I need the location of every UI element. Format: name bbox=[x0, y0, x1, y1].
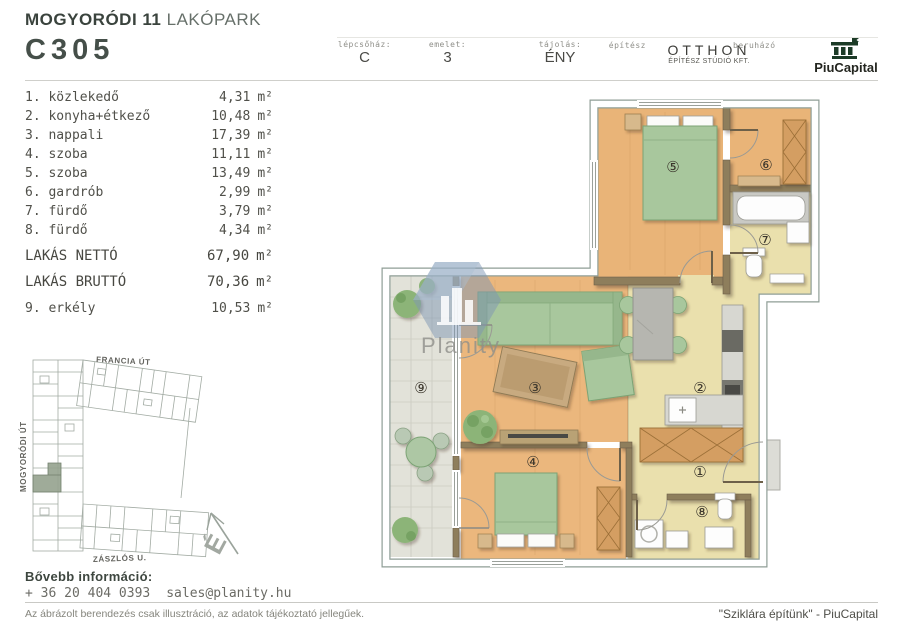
site-map-buildings bbox=[33, 360, 209, 557]
project-name-light: LAKÓPARK bbox=[167, 10, 261, 29]
phone-number: + 36 20 404 0393 bbox=[25, 586, 150, 601]
developer-label: beruházó bbox=[733, 41, 776, 50]
meta-orientation: tájolás: ÉNY bbox=[515, 40, 605, 66]
footer-divider bbox=[25, 602, 878, 603]
bedroom4-balcony-glass bbox=[452, 470, 460, 528]
site-map: FRANCIA ÚT MOGYORÓDI ÚT ZÁSZLÓS U. É bbox=[18, 346, 270, 571]
kitchen-counter-bottom bbox=[665, 395, 743, 425]
room-label-7: ⑦ bbox=[758, 231, 771, 249]
page-title: MOGYORÓDI 11 LAKÓPARK bbox=[25, 10, 261, 30]
nightstand bbox=[625, 114, 641, 130]
washing-machine bbox=[635, 520, 663, 548]
room-label-2: ② bbox=[693, 379, 706, 397]
gross-area-row: LAKÁS BRUTTÓ70,36m² bbox=[25, 273, 273, 292]
developer-name: PiuCapital bbox=[804, 60, 888, 75]
disclaimer-text: Az ábrázolt berendezés csak illusztráció… bbox=[25, 608, 364, 620]
header-divider bbox=[25, 80, 878, 81]
toilet bbox=[715, 493, 735, 519]
meta-staircase: lépcsőház: C bbox=[337, 40, 392, 66]
room-row: 8. fürdő4,34m² bbox=[25, 221, 273, 240]
room-row: 3. nappali17,39m² bbox=[25, 126, 273, 145]
room-area-list: 1. közlekedő4,31m² 2. konyha+étkező10,48… bbox=[25, 88, 273, 318]
room-label-6: ⑥ bbox=[759, 156, 772, 174]
room-label-1: ① bbox=[693, 463, 706, 481]
hall-wardrobe bbox=[640, 428, 743, 462]
company-slogan: "Sziklára építünk" - PiuCapital bbox=[719, 607, 878, 621]
architect-label: építész bbox=[598, 41, 646, 50]
piucapital-columns-icon bbox=[826, 38, 864, 61]
north-compass: É bbox=[198, 513, 238, 559]
room-row: 7. fürdő3,79m² bbox=[25, 202, 273, 221]
room-label-3: ③ bbox=[528, 379, 541, 397]
bedroom5-left-window bbox=[590, 160, 598, 250]
room-row: 5. szoba13,49m² bbox=[25, 164, 273, 183]
email-address: sales@planity.hu bbox=[166, 586, 291, 601]
sink bbox=[666, 531, 688, 548]
project-name-bold: MOGYORÓDI 11 bbox=[25, 10, 161, 29]
footer-contacts: + 36 20 404 0393 sales@planity.hu bbox=[25, 586, 291, 601]
sink bbox=[787, 222, 809, 243]
orientation-value: ÉNY bbox=[515, 49, 605, 66]
wardrobe-cabinet bbox=[597, 487, 620, 550]
watermark-text: Planity bbox=[421, 333, 501, 358]
apartment-code: C305 bbox=[25, 34, 114, 67]
net-area-row: LAKÁS NETTÓ67,90m² bbox=[25, 247, 273, 266]
room-label-8: ⑧ bbox=[695, 503, 708, 521]
meta-floor: emelet: 3 bbox=[410, 40, 485, 66]
floor-plan: ① ② ③ ④ ⑤ ⑥ ⑦ ⑧ ⑨ Planity bbox=[375, 90, 835, 575]
bedroom4-bottom-window bbox=[490, 559, 565, 567]
plant bbox=[463, 410, 497, 444]
street-label-top: FRANCIA ÚT bbox=[96, 355, 151, 367]
bathtub bbox=[733, 192, 809, 224]
staircase-value: C bbox=[337, 49, 392, 66]
highlighted-unit bbox=[33, 463, 61, 492]
compass-north-letter: É bbox=[198, 529, 233, 558]
meta-top-border bbox=[337, 37, 878, 38]
street-label-left: MOGYORÓDI ÚT bbox=[19, 421, 28, 492]
shower-tray bbox=[705, 527, 733, 548]
bedroom5-top-window bbox=[637, 100, 723, 108]
orientation-label: tájolás: bbox=[515, 40, 605, 49]
balcony-row: 9. erkély10,53m² bbox=[25, 299, 273, 318]
room-row: 1. közlekedő4,31m² bbox=[25, 88, 273, 107]
room-label-4: ④ bbox=[526, 453, 539, 471]
floor-value: 3 bbox=[410, 49, 485, 66]
room-row: 4. szoba11,11m² bbox=[25, 145, 273, 164]
architect-subtitle: ÉPÍTÉSZ STÚDIÓ KFT. bbox=[654, 58, 764, 65]
staircase-label: lépcsőház: bbox=[337, 40, 392, 49]
footer-info-title: Bővebb információ: bbox=[25, 569, 152, 584]
street-label-bottom: ZÁSZLÓS U. bbox=[93, 553, 147, 564]
tv-cabinet bbox=[500, 430, 578, 444]
room-label-5: ⑤ bbox=[666, 158, 679, 176]
bath-shelf bbox=[770, 274, 804, 283]
room-row: 6. gardrób2,99m² bbox=[25, 183, 273, 202]
floor-label: emelet: bbox=[410, 40, 485, 49]
room-label-9: ⑨ bbox=[414, 379, 427, 397]
room-row: 2. konyha+étkező10,48m² bbox=[25, 107, 273, 126]
